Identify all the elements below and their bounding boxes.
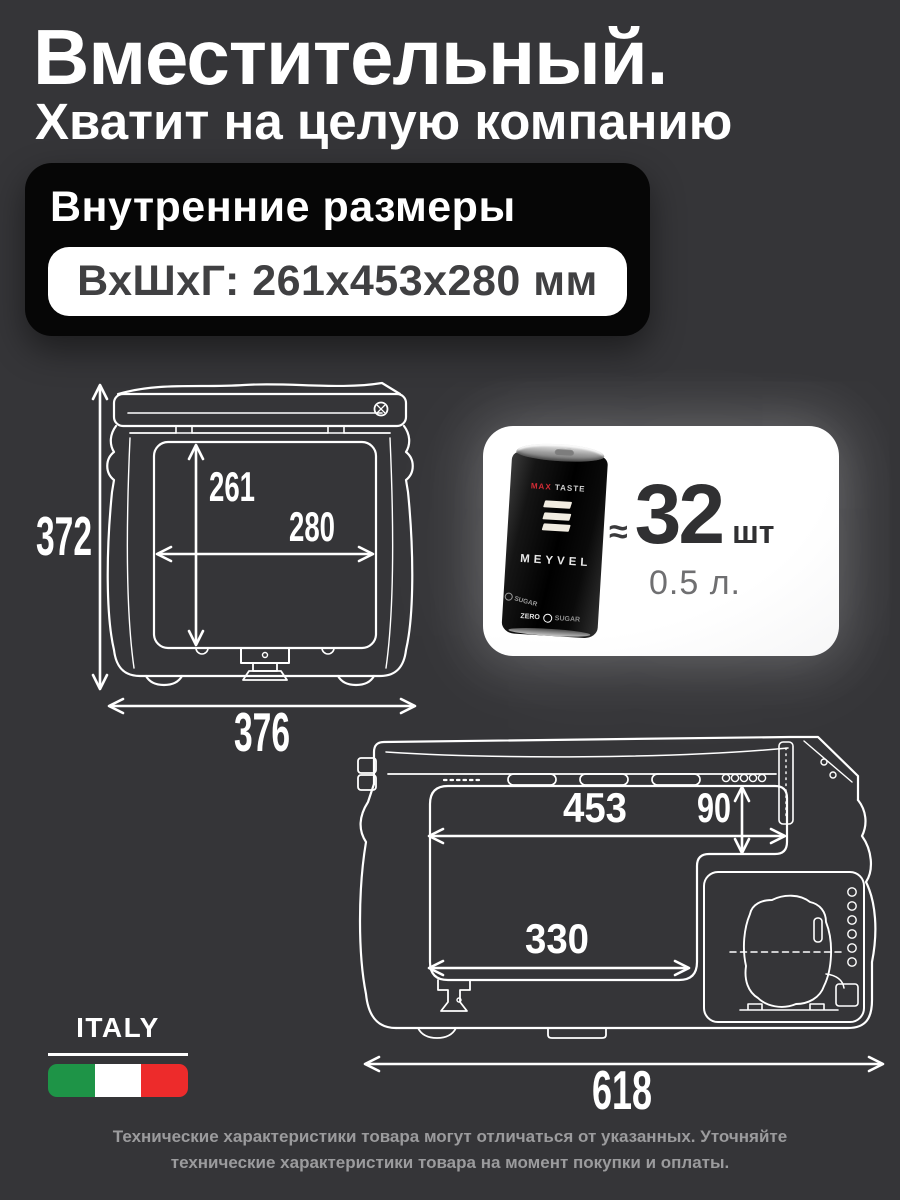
capacity-count: ≈ 32 шт 0.5 л. (609, 472, 774, 603)
dim-inner-floor-width: 330 (525, 915, 589, 962)
origin-block: ITALY (48, 1012, 188, 1097)
dim-inner-depth: 280 (289, 503, 335, 550)
inner-dimensions-value: ВхШхГ: 261x453x280 мм (77, 257, 598, 306)
can-max-label: MAX (531, 481, 552, 491)
front-view-body (107, 383, 413, 685)
page-subtitle: Хватит на целую компанию (35, 96, 732, 147)
dim-inner-width: 453 (563, 784, 627, 831)
can-brand: MEYVEL (516, 552, 592, 569)
inner-dimensions-value-pill: ВхШхГ: 261x453x280 мм (48, 247, 627, 316)
circle-icon (543, 613, 553, 623)
product-infographic: Вместительный. Хватит на целую компанию … (0, 0, 900, 1200)
dim-total-height: 372 (36, 505, 92, 567)
inner-dimensions-label: Внутренние размеры (50, 183, 516, 232)
flag-stripe-white (95, 1064, 142, 1097)
can-count-unit: шт (732, 514, 774, 551)
dim-inner-height: 261 (209, 463, 255, 510)
can-pull-tab (554, 448, 574, 456)
beverage-can: MAX TASTE MEYVEL SUGAR ZERO SUGAR (501, 441, 609, 639)
can-taste-label: TASTE (555, 483, 586, 494)
front-view-dimension-labels: 372 261 280 376 (36, 463, 335, 753)
can-count: 32 (635, 472, 722, 556)
origin-country-label: ITALY (48, 1012, 188, 1056)
can-body: MAX TASTE MEYVEL SUGAR ZERO SUGAR (501, 450, 608, 639)
can-side-sugar-label: SUGAR (504, 592, 538, 609)
approx-symbol: ≈ (609, 513, 628, 552)
can-top-label: MAX TASTE (531, 481, 586, 493)
disclaimer-line-2: технические характеристики товара на мом… (0, 1150, 900, 1176)
can-bottom-rim (508, 626, 590, 638)
side-view-body (358, 737, 875, 1038)
front-view-drawing: 372 261 280 376 (30, 368, 460, 753)
inner-dimensions-panel: Внутренние размеры ВхШхГ: 261x453x280 мм (25, 163, 650, 336)
side-view-drawing: 453 90 330 618 (352, 722, 897, 1122)
disclaimer-line-1: Технические характеристики товара могут … (0, 1124, 900, 1150)
can-volume: 0.5 л. (649, 564, 774, 603)
flag-stripe-green (48, 1064, 95, 1097)
disclaimer: Технические характеристики товара могут … (0, 1124, 900, 1177)
dim-step-depth: 90 (697, 784, 731, 831)
italy-flag-icon (48, 1064, 188, 1097)
dim-total-length: 618 (592, 1059, 652, 1121)
page-title: Вместительный. (33, 18, 667, 96)
flag-stripe-red (141, 1064, 188, 1097)
side-view-dimension-labels: 453 90 330 618 (525, 784, 731, 1121)
dim-total-width: 376 (234, 701, 290, 753)
can-zero-sugar-label: ZERO SUGAR (502, 611, 598, 626)
meyvel-logo-icon (542, 500, 571, 531)
capacity-card: MAX TASTE MEYVEL SUGAR ZERO SUGAR (483, 426, 839, 656)
circle-icon (504, 592, 514, 602)
